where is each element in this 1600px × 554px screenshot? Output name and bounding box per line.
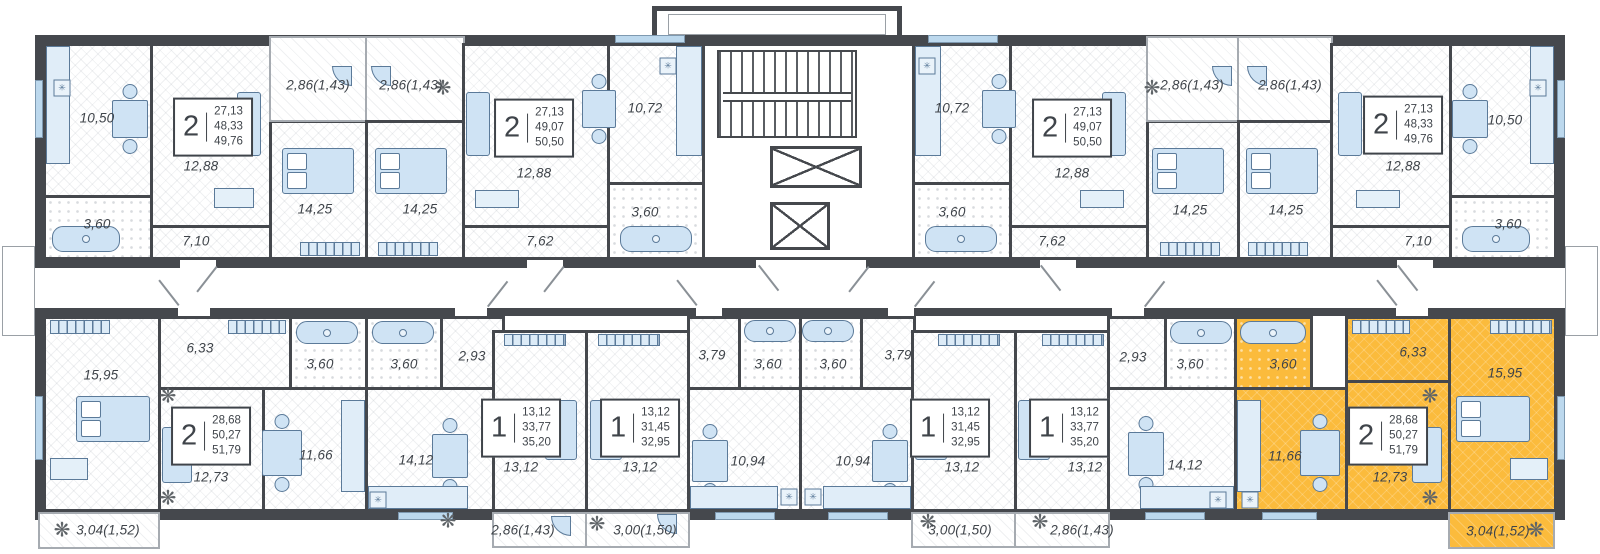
apartment-area: 50,27 [1389,429,1418,444]
wardrobe-icon [938,334,1000,346]
bathtub-icon [744,320,796,342]
area-label: 2,86(1,43) [1258,78,1322,93]
vent-icon: ✳ [919,58,936,75]
area-label: 10,72 [628,101,663,116]
dining-table-icon [112,100,148,138]
bed-icon [1152,148,1224,194]
area-label: 10,94 [836,454,871,469]
window [1557,80,1565,138]
total-area: 50,50 [1073,135,1102,150]
area-label: 12,88 [517,166,552,181]
bathtub-icon [1240,321,1306,344]
dining-table-icon [1300,430,1340,476]
area-label: 12,88 [184,159,219,174]
bed-icon [1246,148,1318,194]
living-area: 27,13 [214,105,243,120]
door-leaf-icon [1144,281,1165,307]
wardrobe-icon [1352,320,1410,334]
area-label: 10,72 [935,101,970,116]
area-label: 3,00(1,50) [613,523,677,538]
vent-icon: ✳ [805,489,822,506]
area-label: 2,86(1,43) [379,78,443,93]
apartment-area: 31,45 [641,421,670,436]
desk-icon [1080,190,1124,208]
door-leaf-icon [1040,265,1061,291]
wardrobe-icon [1160,242,1220,256]
plant-icon: ❋ [1422,486,1439,511]
area-label: 14,25 [298,202,333,217]
plant-icon: ❋ [440,509,457,534]
vent-icon: ✳ [54,80,71,97]
area-label: 7,10 [1404,234,1431,249]
area-label: 3,60 [754,357,781,372]
area-label: 2,86(1,43) [1050,523,1114,538]
desk-icon [1510,458,1548,480]
apartment-area: 49,07 [535,121,564,136]
plant-icon: ❋ [1422,384,1439,409]
area-label: 14,25 [1269,203,1304,218]
area-label: 12,73 [1373,470,1408,485]
door-opening [178,308,210,316]
wardrobe-icon [504,334,566,346]
right-escape-rail [1565,246,1598,336]
apartment-info-card-b1[interactable]: 2 28,6850,2751,79 [171,407,251,466]
area-label: 6,33 [186,341,213,356]
apartment-area: 33,77 [1070,421,1099,436]
kitchen-counter-icon [341,400,365,492]
area-label: 3,60 [1176,357,1203,372]
window [1262,512,1317,520]
window [35,396,43,460]
area-label: 6,33 [1399,345,1426,360]
desk-icon [475,190,519,208]
area-label: 14,12 [399,453,434,468]
sofa-icon [466,92,490,156]
area-label: 11,66 [299,448,333,463]
door-leaf-icon [676,280,697,306]
total-area: 32,95 [951,435,980,450]
area-label: 3,60 [306,357,333,372]
window [828,512,888,520]
door-opening [888,308,914,316]
desk-icon [50,458,88,480]
apartment-area: 50,27 [212,429,241,444]
area-label: 15,95 [1488,366,1523,381]
bathtub-icon [620,226,692,252]
kitchen-counter-icon [690,486,778,509]
apartment-info-card-b2[interactable]: 1 13,1233,7735,20 [481,399,561,458]
rooms-count: 1 [920,414,944,443]
elevator-1 [770,146,862,188]
rooms-count: 2 [1373,111,1397,140]
staircase [717,50,857,138]
plant-icon: ❋ [1528,518,1545,543]
window [1145,512,1205,520]
core-vestibule-inner [668,14,886,35]
apartment-info-card-t4[interactable]: 2 27,1348,3349,76 [1363,96,1443,155]
bathtub-icon [802,320,854,342]
area-label: 10,94 [731,454,766,469]
total-area: 35,20 [522,435,551,450]
apartment-info-card-t1[interactable]: 2 27,1348,3349,76 [173,98,253,157]
bed-icon [282,148,354,194]
apartment-area: 48,33 [214,120,243,135]
window [1557,396,1565,460]
bed-icon [1456,396,1530,442]
area-label: 3,60 [1494,217,1521,232]
area-label: 13,12 [1068,460,1103,475]
area-label: 3,79 [698,348,725,363]
kitchen-counter-icon [676,46,702,156]
area-label: 2,93 [1119,350,1146,365]
vent-icon: ✳ [370,492,387,509]
area-label: 12,73 [194,470,229,485]
rooms-count: 1 [491,414,515,443]
desk-icon [1356,190,1400,208]
window [615,35,685,43]
area-label: 2,86(1,43) [286,78,350,93]
door-opening [756,260,866,268]
door-leaf-icon [196,266,217,292]
rooms-count: 1 [610,414,634,443]
door-leaf-icon [487,281,508,307]
area-label: 12,88 [1386,159,1421,174]
door-opening [1396,308,1428,316]
elevator-2 [770,202,830,250]
vent-icon: ✳ [1530,80,1547,97]
dining-table-icon [432,434,468,478]
area-label: 3,60 [631,205,658,220]
total-area: 51,79 [1389,443,1418,458]
bed-icon [375,148,447,194]
plant-icon: ❋ [160,384,177,409]
door-opening [1040,260,1076,268]
area-label: 15,95 [84,368,119,383]
apartment-area: 49,07 [1073,121,1102,136]
living-area: 13,12 [641,406,670,421]
area-label: 7,62 [1038,234,1065,249]
area-label: 10,50 [80,111,115,126]
kitchen-counter-icon [46,46,70,164]
rooms-count: 1 [1039,414,1063,443]
wardrobe-icon [1490,320,1552,334]
wardrobe-icon [300,242,360,256]
bathtub-icon [1170,321,1232,344]
area-label: 14,25 [403,202,438,217]
wardrobe-icon [1248,242,1308,256]
living-area: 13,12 [522,406,551,421]
area-label: 10,50 [1488,113,1523,128]
total-area: 35,20 [1070,435,1099,450]
door-opening [696,308,722,316]
apartment-info-card-t3[interactable]: 2 27,1349,0750,50 [1032,99,1112,158]
living-area: 28,68 [212,414,241,429]
window [715,512,775,520]
area-label: 3,79 [884,348,911,363]
area-label: 3,04(1,52) [1466,524,1530,539]
total-area: 32,95 [641,435,670,450]
vent-icon: ✳ [1242,492,1259,509]
apartment-info-card-b5[interactable]: 1 13,1233,7735,20 [1029,399,1109,458]
apartment-info-card-t2[interactable]: 2 27,1349,0750,50 [494,99,574,158]
door-opening [180,260,216,268]
bathtub-icon [925,226,997,252]
rooms-count: 2 [1358,422,1382,451]
area-label: 3,60 [83,217,110,232]
door-leaf-icon [758,265,779,291]
plant-icon: ❋ [1032,510,1049,535]
area-label: 12,88 [1055,166,1090,181]
bed-icon [76,396,150,442]
area-label: 3,60 [938,205,965,220]
desk-icon [214,188,254,208]
total-area: 51,79 [212,443,241,458]
apartment-info-card-b3[interactable]: 1 13,1231,4532,95 [600,399,680,458]
door-opening [1112,308,1144,316]
door-leaf-icon [158,280,179,306]
apartment-info-card-b4[interactable]: 1 13,1231,4532,95 [910,399,990,458]
apartment-area: 31,45 [951,421,980,436]
dining-table-icon [582,90,616,128]
room-t1-hall[interactable] [150,225,272,260]
apartment-info-card-b6[interactable]: 2 28,6850,2751,79 [1348,407,1428,466]
dining-table-icon [982,90,1016,128]
dining-table-icon [262,430,302,476]
floor-plan: ✳ ✳ ✳ ✳ ✳ ✳ ✳ ✳ ✳ ❋ ❋ ❋ ❋ ❋ ❋ ❋ ❋ ❋ ❋ ❋ … [0,0,1600,554]
door-opening [527,260,563,268]
plant-icon: ❋ [54,518,71,543]
kitchen-counter-icon [823,486,911,509]
window [35,80,43,138]
apartment-area: 48,33 [1404,118,1433,133]
dining-table-icon [1452,100,1488,138]
vent-icon: ✳ [660,58,677,75]
wardrobe-icon [598,334,660,346]
area-label: 11,66 [1268,449,1302,464]
plant-icon: ❋ [1144,76,1161,101]
rooms-count: 2 [183,113,207,142]
area-label: 13,12 [945,460,980,475]
dining-table-icon [1128,432,1164,476]
door-opening [455,308,487,316]
room-t4-hall[interactable] [1330,225,1452,260]
plant-icon: ❋ [589,512,606,537]
wardrobe-icon [378,242,438,256]
wardrobe-icon [50,320,110,334]
rooms-count: 2 [1042,114,1066,143]
living-area: 28,68 [1389,414,1418,429]
bathtub-icon [296,321,358,344]
area-label: 13,12 [623,460,658,475]
vent-icon: ✳ [1210,492,1227,509]
wardrobe-icon [1042,334,1104,346]
left-escape-rail [2,246,35,336]
rooms-count: 2 [504,114,528,143]
area-label: 3,60 [1269,357,1296,372]
wardrobe-icon [228,320,286,334]
total-area: 49,76 [1404,132,1433,147]
rooms-count: 2 [181,422,205,451]
area-label: 13,12 [504,460,539,475]
area-label: 2,86(1,43) [1160,78,1224,93]
total-area: 50,50 [535,135,564,150]
apartment-area: 33,77 [522,421,551,436]
window [928,35,998,43]
door-leaf-icon [1376,280,1397,306]
area-label: 3,60 [390,357,417,372]
dining-table-icon [692,440,728,482]
room-t3-hall[interactable] [1009,225,1149,260]
kitchen-counter-icon [1237,400,1261,492]
door-leaf-icon [543,266,564,292]
kitchen-counter-icon [1530,46,1554,164]
area-label: 14,25 [1173,203,1208,218]
area-label: 3,60 [819,357,846,372]
area-label: 3,04(1,52) [76,523,140,538]
living-area: 27,13 [535,106,564,121]
door-leaf-icon [848,266,869,292]
total-area: 49,76 [214,134,243,149]
area-label: 7,10 [182,234,209,249]
bathtub-icon [372,321,434,344]
area-label: 2,86(1,43) [491,523,555,538]
vent-icon: ✳ [781,489,798,506]
plant-icon: ❋ [160,486,177,511]
door-leaf-icon [1397,265,1418,291]
living-area: 27,13 [1404,103,1433,118]
area-label: 14,12 [1168,458,1203,473]
sofa-icon [1338,92,1362,156]
area-label: 2,93 [458,349,485,364]
door-opening [1397,260,1433,268]
living-area: 13,12 [1070,406,1099,421]
dining-table-icon [872,440,908,482]
door-leaf-icon [914,281,935,307]
area-label: 7,62 [526,234,553,249]
living-area: 27,13 [1073,106,1102,121]
area-label: 3,00(1,50) [928,523,992,538]
living-area: 13,12 [951,406,980,421]
